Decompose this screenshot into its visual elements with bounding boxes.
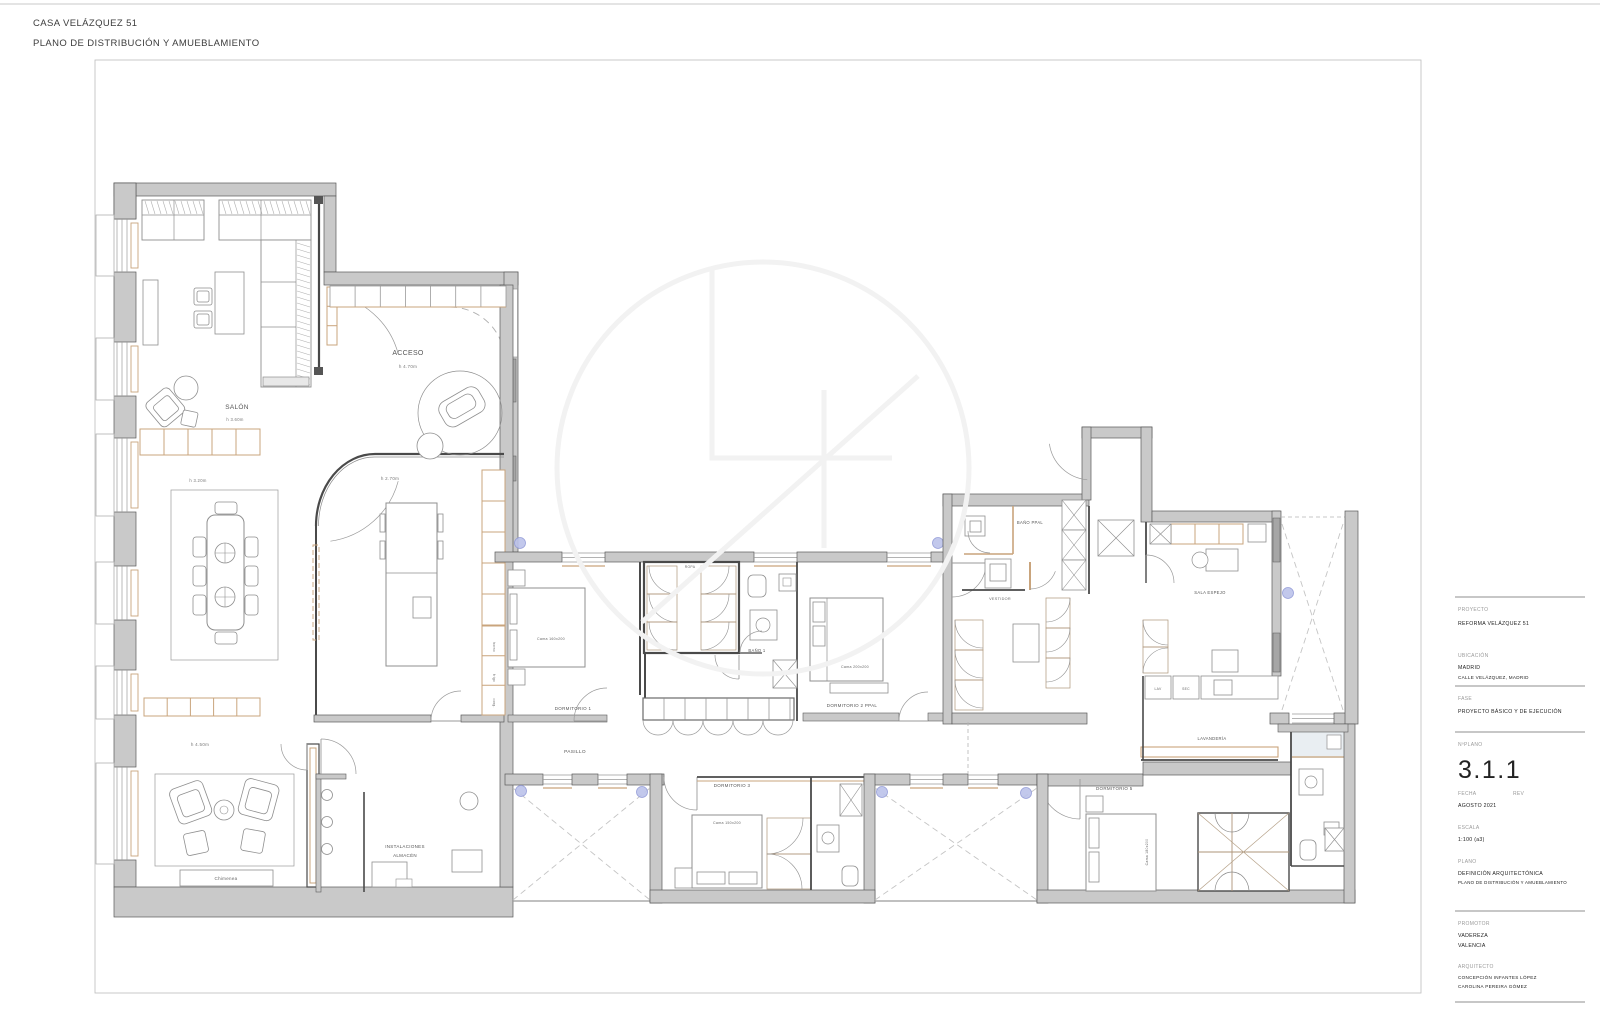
svg-text:PLANO DE DISTRIBUCIÓN Y AMUEBL: PLANO DE DISTRIBUCIÓN Y AMUEBLAMIENTO — [33, 38, 260, 49]
svg-text:PROYECTO BÁSICO Y DE EJECUCIÓN: PROYECTO BÁSICO Y DE EJECUCIÓN — [1458, 708, 1562, 715]
svg-text:DORMITORIO 1: DORMITORIO 1 — [555, 706, 592, 711]
svg-text:MADRID: MADRID — [1458, 665, 1480, 671]
svg-text:FASE: FASE — [1458, 696, 1472, 702]
svg-text:h 4.70m: h 4.70m — [399, 364, 417, 369]
svg-text:CASA VELÁZQUEZ 51: CASA VELÁZQUEZ 51 — [33, 18, 137, 29]
svg-text:PLANO DE DISTRIBUCIÓN Y AMUEBL: PLANO DE DISTRIBUCIÓN Y AMUEBLAMIENTO — [1458, 880, 1567, 885]
svg-text:VALENCIA: VALENCIA — [1458, 943, 1486, 949]
svg-text:ARQUITECTO: ARQUITECTO — [1458, 964, 1494, 970]
svg-text:DORMITORIO 2 PPAL: DORMITORIO 2 PPAL — [827, 703, 878, 708]
svg-text:INSTALACIONES: INSTALACIONES — [385, 844, 425, 849]
svg-text:DORMITORIO 5: DORMITORIO 5 — [1096, 786, 1133, 791]
svg-text:LAV: LAV — [1154, 687, 1161, 691]
svg-text:Cama 160x200: Cama 160x200 — [537, 637, 565, 641]
svg-text:NºPLANO: NºPLANO — [1458, 742, 1483, 748]
svg-text:3.1.1: 3.1.1 — [1458, 756, 1521, 784]
svg-text:horno: horno — [492, 642, 496, 652]
svg-text:AGOSTO 2021: AGOSTO 2021 — [1458, 803, 1496, 809]
svg-text:PROYECTO: PROYECTO — [1458, 607, 1488, 613]
svg-text:ROPA: ROPA — [685, 565, 696, 569]
svg-text:ALMACÉN: ALMACÉN — [393, 852, 417, 858]
svg-text:CAROLINA PEREIRA GÓMEZ: CAROLINA PEREIRA GÓMEZ — [1458, 983, 1527, 989]
svg-text:BAÑO 1: BAÑO 1 — [748, 648, 766, 653]
svg-text:cong.: cong. — [492, 698, 496, 707]
svg-text:Chimenea: Chimenea — [215, 876, 238, 881]
svg-text:FECHA: FECHA — [1458, 791, 1477, 797]
svg-text:CONCEPCIÓN INFANTES LÓPEZ: CONCEPCIÓN INFANTES LÓPEZ — [1458, 974, 1537, 980]
svg-text:h 4.50m: h 4.50m — [191, 742, 209, 747]
svg-text:h 3.20m: h 3.20m — [189, 478, 206, 483]
svg-text:Cama 150x200: Cama 150x200 — [713, 821, 741, 825]
svg-text:LAVANDERÍA: LAVANDERÍA — [1198, 736, 1227, 741]
svg-text:DORMITORIO 3: DORMITORIO 3 — [714, 783, 751, 788]
svg-text:DEFINICIÓN ARQUITECTÓNICA: DEFINICIÓN ARQUITECTÓNICA — [1458, 870, 1543, 877]
svg-text:SEC: SEC — [1182, 687, 1190, 691]
svg-text:REFORMA VELÁZQUEZ 51: REFORMA VELÁZQUEZ 51 — [1458, 620, 1529, 627]
svg-text:CALLE VELÁZQUEZ, MADRID: CALLE VELÁZQUEZ, MADRID — [1458, 674, 1529, 680]
svg-text:VADEREZA: VADEREZA — [1458, 933, 1488, 939]
svg-text:ACCESO: ACCESO — [392, 350, 424, 357]
svg-text:UBICACIÓN: UBICACIÓN — [1458, 652, 1489, 659]
svg-text:BAÑO PPAL: BAÑO PPAL — [1017, 520, 1043, 525]
svg-text:VESTIDOR: VESTIDOR — [989, 597, 1011, 601]
svg-text:SALA ESPEJO: SALA ESPEJO — [1194, 590, 1226, 595]
svg-text:h 2.70m: h 2.70m — [381, 476, 399, 481]
svg-text:PROMOTOR: PROMOTOR — [1458, 921, 1490, 927]
svg-text:SALÓN: SALÓN — [225, 402, 249, 411]
svg-text:PASILLO: PASILLO — [564, 749, 586, 755]
svg-text:frigo: frigo — [492, 674, 496, 682]
svg-text:Cama 180x200: Cama 180x200 — [1145, 839, 1149, 866]
svg-text:ESCALA: ESCALA — [1458, 825, 1480, 831]
svg-text:1:100 (a3): 1:100 (a3) — [1458, 837, 1485, 843]
svg-text:REV: REV — [1513, 791, 1525, 797]
svg-text:Cama 200x200: Cama 200x200 — [841, 665, 869, 669]
svg-text:PLANO: PLANO — [1458, 859, 1476, 865]
svg-text:h 3.60m: h 3.60m — [226, 417, 243, 422]
